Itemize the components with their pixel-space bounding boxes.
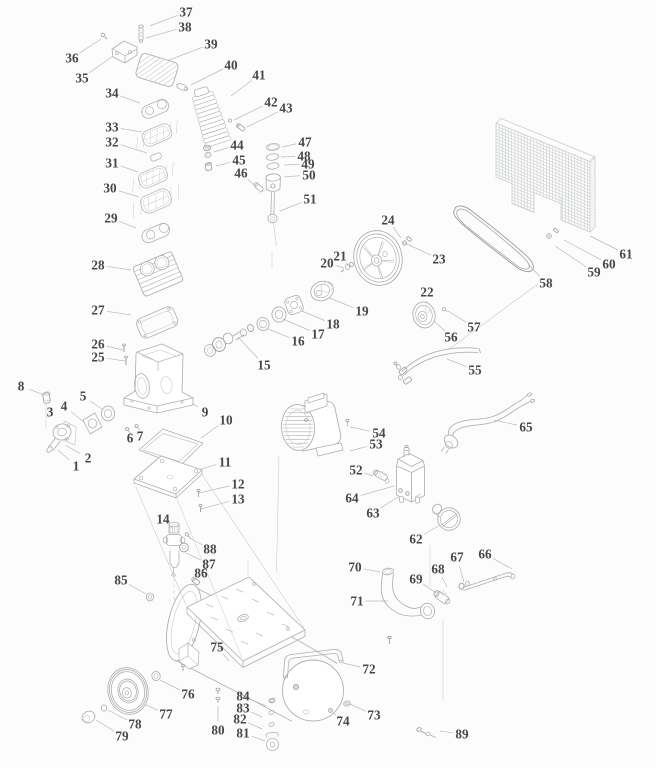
- svg-text:31: 31: [105, 156, 118, 171]
- svg-text:33: 33: [105, 120, 119, 135]
- svg-text:73: 73: [367, 708, 381, 723]
- svg-text:77: 77: [159, 707, 173, 722]
- svg-text:41: 41: [252, 68, 265, 83]
- svg-text:63: 63: [366, 506, 380, 521]
- svg-text:15: 15: [257, 358, 271, 373]
- svg-text:56: 56: [444, 330, 458, 345]
- svg-text:23: 23: [432, 252, 446, 267]
- svg-text:72: 72: [362, 662, 376, 677]
- svg-text:14: 14: [156, 512, 170, 527]
- svg-text:11: 11: [219, 455, 231, 470]
- svg-text:22: 22: [420, 285, 434, 300]
- svg-text:39: 39: [204, 37, 218, 52]
- svg-text:55: 55: [468, 363, 482, 378]
- svg-text:46: 46: [234, 166, 248, 181]
- svg-text:59: 59: [587, 265, 601, 280]
- svg-text:78: 78: [128, 717, 142, 732]
- svg-text:71: 71: [350, 594, 363, 609]
- svg-text:12: 12: [231, 477, 245, 492]
- svg-text:8: 8: [18, 379, 25, 394]
- svg-text:87: 87: [202, 557, 216, 572]
- svg-text:74: 74: [336, 714, 350, 729]
- svg-text:13: 13: [231, 492, 245, 507]
- svg-text:24: 24: [381, 213, 395, 228]
- svg-text:80: 80: [211, 723, 225, 738]
- svg-text:27: 27: [91, 303, 105, 318]
- svg-text:35: 35: [75, 71, 89, 86]
- svg-text:44: 44: [230, 138, 244, 153]
- svg-text:61: 61: [619, 247, 632, 262]
- svg-text:47: 47: [298, 135, 312, 150]
- svg-text:52: 52: [349, 463, 363, 478]
- svg-text:40: 40: [224, 58, 238, 73]
- svg-text:6: 6: [127, 431, 134, 446]
- svg-text:20: 20: [320, 256, 334, 271]
- svg-text:1: 1: [73, 459, 80, 474]
- svg-text:50: 50: [302, 168, 316, 183]
- svg-text:18: 18: [326, 317, 340, 332]
- svg-text:68: 68: [431, 562, 445, 577]
- svg-text:88: 88: [203, 542, 217, 557]
- svg-text:37: 37: [179, 5, 193, 20]
- svg-text:85: 85: [114, 573, 128, 588]
- svg-text:43: 43: [279, 101, 293, 116]
- svg-text:21: 21: [333, 249, 346, 264]
- svg-text:34: 34: [105, 86, 119, 101]
- svg-text:54: 54: [372, 426, 386, 441]
- svg-text:75: 75: [210, 640, 224, 655]
- svg-text:10: 10: [219, 413, 233, 428]
- svg-text:3: 3: [47, 405, 54, 420]
- svg-text:84: 84: [236, 689, 250, 704]
- svg-text:60: 60: [602, 257, 616, 272]
- svg-text:67: 67: [450, 550, 464, 565]
- svg-text:70: 70: [348, 560, 362, 575]
- svg-text:64: 64: [345, 491, 359, 506]
- svg-text:76: 76: [181, 687, 195, 702]
- svg-text:17: 17: [311, 327, 325, 342]
- svg-text:29: 29: [104, 211, 118, 226]
- svg-text:9: 9: [202, 405, 209, 420]
- svg-text:32: 32: [105, 135, 119, 150]
- svg-text:65: 65: [519, 420, 533, 435]
- svg-text:25: 25: [91, 350, 105, 365]
- svg-text:66: 66: [478, 547, 492, 562]
- svg-text:26: 26: [91, 337, 105, 352]
- svg-text:19: 19: [355, 304, 369, 319]
- svg-text:69: 69: [409, 572, 423, 587]
- svg-text:62: 62: [409, 532, 423, 547]
- svg-text:79: 79: [115, 729, 129, 744]
- svg-text:2: 2: [85, 451, 92, 466]
- svg-text:42: 42: [264, 95, 278, 110]
- svg-text:7: 7: [137, 429, 144, 444]
- svg-text:30: 30: [103, 181, 117, 196]
- svg-text:38: 38: [178, 20, 192, 35]
- svg-text:81: 81: [236, 726, 249, 741]
- svg-text:36: 36: [65, 51, 79, 66]
- svg-text:51: 51: [303, 192, 316, 207]
- svg-text:4: 4: [61, 399, 68, 414]
- svg-text:28: 28: [91, 258, 105, 273]
- svg-text:57: 57: [467, 320, 481, 335]
- svg-text:16: 16: [291, 334, 305, 349]
- svg-text:89: 89: [455, 727, 469, 742]
- svg-text:58: 58: [539, 276, 553, 291]
- svg-text:5: 5: [80, 389, 87, 404]
